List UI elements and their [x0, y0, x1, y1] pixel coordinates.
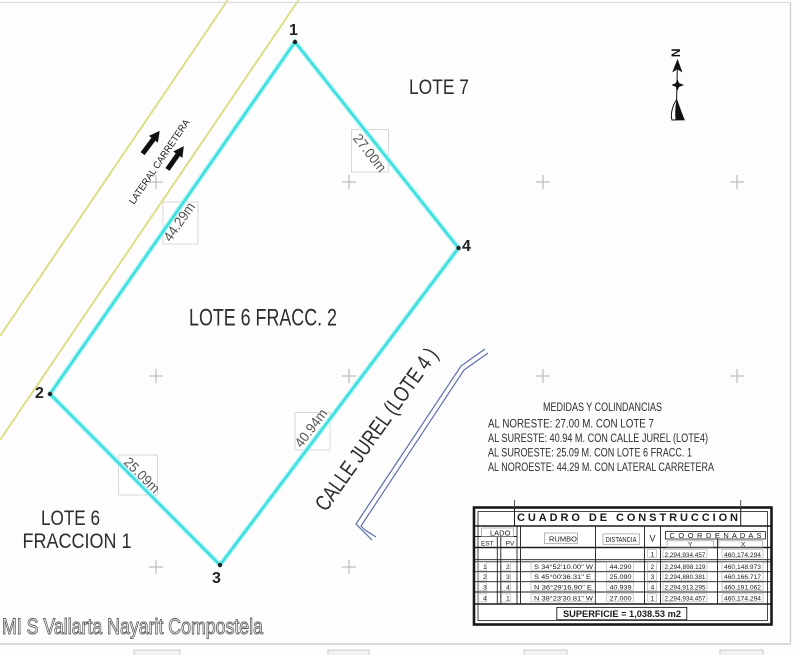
svg-text:N 38°23'30.81" W: N 38°23'30.81" W	[534, 595, 594, 603]
svg-text:4: 4	[506, 584, 510, 591]
svg-text:460,148.973: 460,148.973	[724, 564, 761, 571]
svg-text:27.000: 27.000	[610, 596, 632, 603]
svg-text:2,294,898.119: 2,294,898.119	[665, 564, 706, 571]
svg-text:AL NOROESTE: 44.29 M. CON LATE: AL NOROESTE: 44.29 M. CON LATERAL CARRET…	[488, 462, 714, 474]
svg-text:2,294,934.457: 2,294,934.457	[665, 596, 706, 603]
svg-text:460,174.294: 460,174.294	[724, 552, 761, 559]
svg-text:1: 1	[651, 552, 655, 559]
svg-text:LOTE 6 FRACC. 2: LOTE 6 FRACC. 2	[189, 305, 337, 332]
svg-text:3: 3	[651, 574, 655, 581]
svg-text:AL SURESTE: 40.94 M. CON CALLE: AL SURESTE: 40.94 M. CON CALLE JUREL (LO…	[488, 433, 708, 445]
svg-text:1: 1	[506, 596, 510, 603]
svg-text:FRACCION 1: FRACCION 1	[23, 530, 132, 553]
svg-text:40.939: 40.939	[610, 584, 632, 591]
svg-text:PV: PV	[506, 541, 515, 548]
svg-text:1: 1	[651, 596, 655, 603]
svg-text:460,191.062: 460,191.062	[724, 584, 761, 591]
svg-text:2: 2	[506, 564, 510, 571]
svg-text:MI S Vallarta Nayarit Composte: MI S Vallarta Nayarit Compostela	[2, 614, 264, 639]
svg-text:S 34°52'10.00" W: S 34°52'10.00" W	[534, 563, 594, 571]
svg-text:2,294,934.457: 2,294,934.457	[665, 552, 706, 559]
svg-text:MEDIDAS Y COLINDANCIAS: MEDIDAS Y COLINDANCIAS	[543, 402, 662, 414]
svg-text:3: 3	[483, 584, 487, 591]
svg-text:2,294,913.295: 2,294,913.295	[665, 584, 706, 591]
svg-text:AL SUROESTE: 25.09 M. CON LOTE: AL SUROESTE: 25.09 M. CON LOTE 6 FRACC. …	[488, 448, 692, 460]
svg-text:2: 2	[483, 574, 487, 581]
svg-text:LOTE 6: LOTE 6	[41, 507, 100, 530]
svg-text:RUMBO: RUMBO	[549, 535, 577, 544]
svg-text:4: 4	[651, 584, 655, 591]
svg-text:LOTE 7: LOTE 7	[409, 76, 469, 99]
svg-text:1: 1	[289, 22, 298, 39]
svg-text:3: 3	[506, 574, 510, 581]
svg-text:N: N	[669, 49, 683, 58]
svg-text:N 36°29'16.90" E: N 36°29'16.90" E	[534, 583, 593, 591]
svg-text:X: X	[741, 541, 746, 548]
svg-text:Y: Y	[688, 541, 693, 548]
svg-text:2,294,880.381: 2,294,880.381	[665, 574, 706, 581]
svg-text:44.290: 44.290	[610, 564, 632, 571]
svg-text:CUADRO DE CONSTRUCCION: CUADRO DE CONSTRUCCION	[517, 512, 738, 524]
svg-text:460,166.717: 460,166.717	[724, 574, 761, 581]
svg-text:DISTANCIA: DISTANCIA	[606, 535, 637, 544]
svg-text:4: 4	[462, 238, 471, 255]
svg-text:2: 2	[35, 385, 44, 402]
svg-text:1: 1	[483, 564, 487, 571]
svg-text:S 45°00'36.31" E: S 45°00'36.31" E	[534, 573, 592, 581]
svg-text:C O O R D E N A D A S: C O O R D E N A D A S	[670, 531, 762, 540]
svg-text:LADO: LADO	[490, 529, 511, 538]
svg-text:V: V	[650, 534, 656, 544]
svg-text:SUPERFICIE = 1,038.53 m2: SUPERFICIE = 1,038.53 m2	[563, 609, 681, 620]
svg-text:EST: EST	[481, 541, 494, 548]
svg-text:4: 4	[483, 596, 487, 603]
svg-text:3: 3	[212, 570, 221, 587]
svg-text:25.090: 25.090	[610, 574, 632, 581]
svg-text:2: 2	[651, 564, 655, 571]
svg-text:AL NORESTE: 27.00 M. CON LOTE: AL NORESTE: 27.00 M. CON LOTE 7	[488, 419, 654, 431]
svg-text:460,174.294: 460,174.294	[724, 596, 761, 603]
